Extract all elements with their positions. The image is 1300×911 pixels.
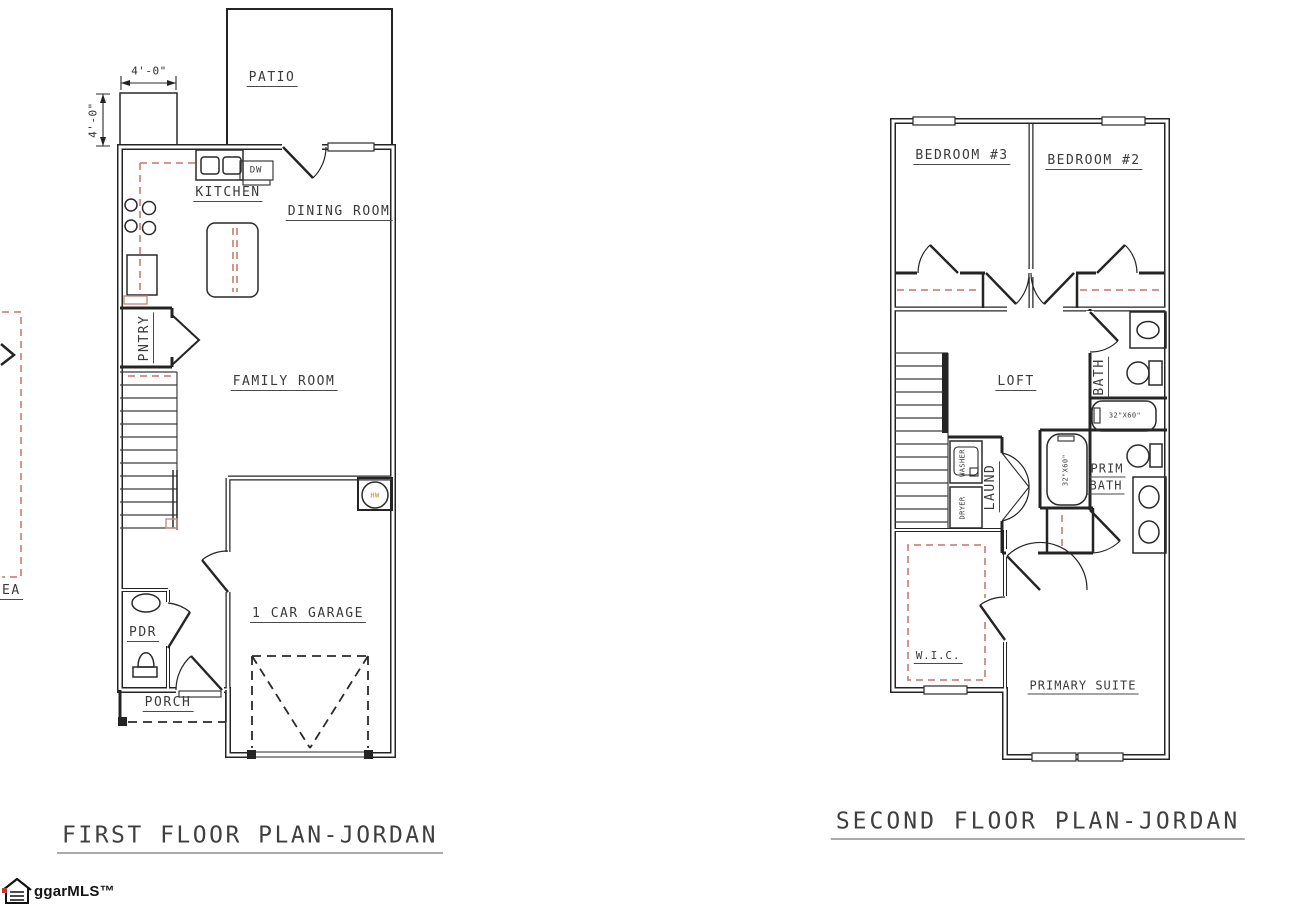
room-label-prim-bath-1: PRIM: [1089, 463, 1126, 478]
dimension-lines: [96, 76, 176, 146]
powder-sink: [132, 594, 160, 612]
hall-bath: [1086, 309, 1167, 552]
mls-brand-text: ggarMLS™: [34, 883, 115, 900]
cabinet-red-box: [124, 296, 147, 304]
room-label-family: FAMILY ROOM: [231, 375, 338, 391]
pantry-walls: [120, 308, 199, 367]
washer-label: WASHER: [960, 449, 967, 477]
wic-window: [924, 686, 967, 694]
room-label-bedroom3: BEDROOM #3: [913, 149, 1010, 165]
room-label-patio: PATIO: [247, 71, 298, 87]
room-label-garage: 1 CAR GARAGE: [250, 607, 366, 623]
primary-tub-size-label: 32"X60": [1063, 454, 1070, 486]
house-logo-icon: [2, 878, 32, 905]
refrigerator: [127, 255, 157, 295]
dryer-label: DRYER: [960, 496, 967, 519]
edge-partial-label: EA: [0, 584, 23, 600]
bedroom3-door: [986, 273, 1029, 304]
bedroom3-window: [913, 117, 955, 125]
dining-window: [328, 143, 374, 151]
room-label-prim-bath-2: BATH: [1088, 480, 1125, 495]
counter-dashed-line: [140, 163, 196, 294]
room-label-dining: DINING ROOM: [286, 205, 393, 221]
dimension-width-label: 4'-0": [131, 66, 167, 77]
closet2-door: [1097, 245, 1137, 273]
room-label-laundry: LAUND: [984, 462, 1000, 513]
powder-toilet: [133, 653, 157, 677]
garage-door-swing: [252, 656, 368, 748]
primary-bath: [1002, 430, 1166, 557]
first-floor-title: FIRST FLOOR PLAN-JORDAN: [57, 825, 443, 854]
second-floor-title: SECOND FLOOR PLAN-JORDAN: [831, 811, 1245, 840]
room-label-loft: LOFT: [995, 375, 1036, 391]
room-label-kitchen: KITCHEN: [193, 186, 262, 202]
bedroom2-door: [1031, 273, 1074, 304]
closet3-door: [918, 245, 958, 273]
floor-plan-sheet: PATIO 4'-0" 4'-0" KITCHEN DINING ROOM DW…: [0, 0, 1300, 911]
bedroom2-window: [1102, 117, 1145, 125]
room-label-bedroom2: BEDROOM #2: [1045, 154, 1142, 170]
kitchen-sink: [196, 150, 243, 180]
edge-partial-linework: [1, 312, 21, 577]
room-label-wic: W.I.C.: [914, 650, 963, 664]
second-floor-plan: [893, 117, 1167, 761]
room-label-powder: PDR: [127, 626, 159, 642]
primary-window-right: [1078, 753, 1123, 761]
stairs-second-floor: [895, 353, 948, 528]
primary-window-left: [1032, 753, 1076, 761]
front-door: [176, 656, 222, 697]
hall-tub-size-label: 32"X60": [1109, 413, 1141, 420]
room-label-primary-suite: PRIMARY SUITE: [1028, 680, 1139, 695]
room-label-pantry: PNTRY: [138, 313, 154, 364]
mls-watermark: ggarMLS™: [2, 878, 115, 905]
room-label-bath: BATH: [1093, 356, 1109, 397]
plan-linework: [0, 0, 1300, 911]
room-label-porch: PORCH: [143, 696, 194, 712]
water-heater-label: HW: [370, 493, 379, 500]
dimension-depth-label: 4'-0": [88, 102, 99, 138]
kitchen-island: [207, 223, 258, 297]
dishwasher-label: DW: [250, 167, 262, 176]
stairs-first-floor: [120, 372, 177, 530]
